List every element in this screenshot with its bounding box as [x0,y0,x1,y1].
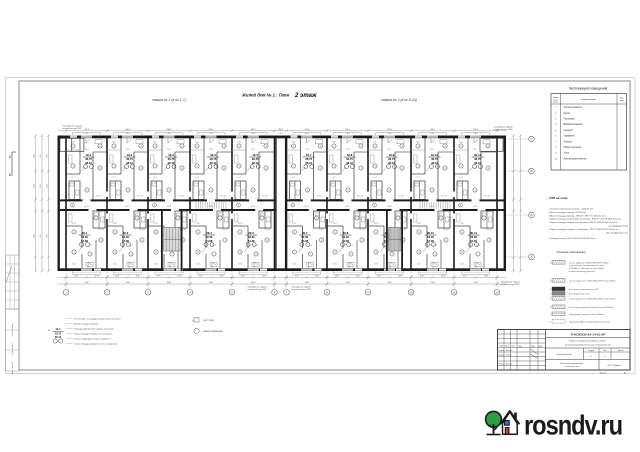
svg-text:10,6 м2: 10,6 м2 [443,229,449,231]
svg-text:Холл: Холл [563,152,570,155]
svg-text:2070: 2070 [377,275,381,277]
svg-text:2070: 2070 [333,223,337,225]
svg-text:Дата: Дата [539,346,542,348]
svg-text:2070: 2070 [113,223,117,225]
svg-text:3240: 3240 [332,142,336,144]
svg-text:5: 5 [550,299,551,301]
svg-text:16,2: 16,2 [459,177,462,179]
svg-text:Лоджия: Лоджия [563,140,573,143]
svg-text:3240: 3240 [195,142,199,144]
svg-text:52,30: 52,30 [342,235,349,239]
svg-text:36,75: 36,75 [388,157,395,161]
svg-text:2070: 2070 [420,275,424,277]
svg-text:h=2,7: h=2,7 [345,206,350,208]
svg-text:10: 10 [410,290,413,294]
svg-text:1К-1: 1К-1 [86,153,92,157]
svg-text:52,30: 52,30 [248,235,255,239]
svg-text:15,8: 15,8 [129,245,132,247]
svg-text:2070: 2070 [209,149,213,151]
svg-text:3240: 3240 [292,142,296,144]
svg-text:2070: 2070 [157,275,161,277]
svg-text:38,12: 38,12 [210,161,217,165]
svg-text:36,75: 36,75 [431,157,438,161]
svg-text:16,2: 16,2 [195,177,198,179]
svg-text:2: 2 [550,281,551,283]
svg-text:2070: 2070 [238,223,242,225]
svg-text:2070: 2070 [251,149,255,151]
svg-text:38,12: 38,12 [126,161,133,165]
svg-text:2К-1: 2К-1 [82,231,88,235]
svg-text:Прихожая: Прихожая [564,118,576,121]
svg-text:Строительный объем квартир -: Строительный объем квартир - 1326,45 м3 [549,208,593,211]
svg-text:2070: 2070 [136,275,140,277]
svg-text:2070: 2070 [374,223,378,225]
svg-text:2070: 2070 [315,275,319,277]
svg-text:h=2,7: h=2,7 [387,206,392,208]
svg-text:Н.контр.: Н.контр. [499,364,506,366]
svg-text:3500: 3500 [40,234,42,238]
svg-text:СК-2: СК-2 [388,133,392,135]
svg-text:2070: 2070 [430,149,434,151]
svg-text:12,4 м2: 12,4 м2 [220,196,226,198]
svg-text:8: 8 [293,205,294,207]
svg-text:Иванова: Иванова [506,350,512,352]
svg-text:1К-8: 1К-8 [347,153,353,157]
svg-text:устройство при СМР: устройство при СМР [493,128,513,131]
svg-text:2070: 2070 [356,275,360,277]
svg-text:12,4 м2: 12,4 м2 [178,196,184,198]
svg-text:3240: 3240 [153,142,157,144]
svg-text:Номер площадки квартиры: Номер площадки квартиры [74,324,99,326]
svg-text:2К-4: 2К-4 [206,231,212,235]
svg-text:4140: 4140 [251,282,255,284]
svg-text:Ванная комната: Ванная комната [564,123,584,126]
svg-text:Стадия: Стадия [588,350,594,352]
svg-text:38,12: 38,12 [55,336,62,339]
svg-text:Вентиляционный зазор: Вентиляционный зазор [569,292,589,295]
svg-text:3500: 3500 [40,154,42,158]
svg-text:12,4 м2: 12,4 м2 [441,196,447,198]
svg-text:Стены наружные из КББ («БЕССЕР: Стены наружные из КББ («БЕССЕР») 390мм [569,262,609,264]
svg-text:12,4 м2: 12,4 м2 [357,196,363,198]
svg-text:2К-7: 2К-7 [302,231,308,235]
svg-text:4140: 4140 [84,282,88,284]
svg-text:Жилая комната: Жилая комната [563,106,583,109]
svg-text:10,6 м2: 10,6 м2 [139,229,145,231]
svg-text:В: В [531,169,533,173]
svg-text:нетажного этажа: нетажного этажа [565,366,581,368]
svg-text:3240: 3240 [459,142,463,144]
svg-text:h=2,7: h=2,7 [430,206,435,208]
svg-text:38,12: 38,12 [168,161,175,165]
svg-text:6: 6 [550,307,551,309]
svg-text:П-НСМ.935-3А-14-01-АР: П-НСМ.935-3А-14-01-АР [571,333,605,337]
svg-text:8: 8 [550,322,551,324]
svg-text:Экспликация помещений: Экспликация помещений [569,87,608,91]
svg-text:12,4 м2: 12,4 м2 [484,196,490,198]
svg-text:38,12: 38,12 [85,161,92,165]
svg-text:3240: 3240 [196,264,200,266]
svg-text:3240: 3240 [416,142,420,144]
svg-text:Петров: Петров [506,355,511,357]
svg-text:Иванова: Иванова [506,364,512,366]
svg-text:4140: 4140 [209,282,213,284]
svg-text:2070: 2070 [463,275,467,277]
svg-text:Площадь этажа - 583,24 (469,: Площадь этажа - 583,24 (469,64 645,32) к… [549,238,596,240]
svg-text:городской округ Верхняя Пышма: городской округ Верхняя Пышма Свердловск… [565,344,612,347]
svg-text:15,8: 15,8 [254,245,257,247]
svg-text:3: 3 [550,289,551,291]
svg-text:8: 8 [154,205,155,207]
svg-text:3240: 3240 [237,142,241,144]
svg-text:Формат: Формат [599,371,606,374]
svg-text:номер помещения: номер помещения [203,331,223,333]
svg-text:1К-4: 1К-4 [210,153,216,157]
svg-text:8: 8 [238,205,239,207]
svg-text:36,75: 36,75 [168,157,175,161]
svg-text:Взам. инв. №: Взам. инв. № [11,361,14,374]
svg-text:8: 8 [72,205,73,207]
svg-text:12,4 м2: 12,4 м2 [262,196,268,198]
svg-text:2070: 2070 [484,275,488,277]
svg-text:12,4 м2: 12,4 м2 [398,196,404,198]
svg-text:3500: 3500 [47,184,49,188]
svg-text:4140: 4140 [305,282,309,284]
svg-text:38,12: 38,12 [474,161,481,165]
svg-text:16,2: 16,2 [153,177,156,179]
svg-text:15,8: 15,8 [309,245,312,247]
svg-text:(без коэффициентов): (без коэффициентов) [606,231,628,234]
svg-text:Жилая застройка по ул.Мира и п: Жилая застройка по ул.Мира и п.Мехн, [568,340,607,343]
svg-text:3240: 3240 [460,264,464,266]
svg-text:3240: 3240 [417,264,421,266]
svg-text:h=2,7: h=2,7 [125,206,130,208]
svg-text:1К-5: 1К-5 [252,153,258,157]
svg-text:38,12: 38,12 [388,161,395,165]
svg-text:16,2: 16,2 [237,177,240,179]
svg-text:2070: 2070 [346,149,350,151]
svg-text:3240: 3240 [113,264,117,266]
svg-text:(с коэффициентом): (с коэффициентом) [608,225,628,228]
svg-text:Жилая площадь квартир - 2115: Жилая площадь квартир - 2115,6 м2 [549,212,587,214]
svg-text:38,12: 38,12 [305,161,312,165]
svg-text:52,30: 52,30 [470,235,477,239]
svg-text:52,30: 52,30 [206,235,213,239]
svg-text:СК-2: СК-2 [305,133,309,135]
svg-text:А: А [531,255,533,259]
svg-text:2070: 2070 [167,149,171,151]
svg-text:2К-2: 2К-2 [123,231,129,235]
svg-text:15,8: 15,8 [476,245,479,247]
svg-text:1К-3: 1К-3 [168,153,174,157]
svg-text:Наименование: Наименование [581,99,597,101]
svg-text:52,30: 52,30 [427,235,434,239]
svg-text:2070: 2070 [72,223,76,225]
svg-text:Общая площадь квартир с балкон: Общая площадь квартир с балконами - 395,… [549,229,618,231]
svg-text:Б: Б [531,213,533,217]
svg-text:3500: 3500 [47,154,49,158]
svg-text:11: 11 [453,290,456,294]
svg-text:устройство при СМР: устройство при СМР [62,127,82,130]
svg-text:10,6 м2: 10,6 м2 [222,229,228,231]
svg-text:устройство при СМР: устройство при СМР [500,283,520,286]
svg-text:3240: 3240 [333,264,337,266]
svg-text:2070: 2070 [295,275,299,277]
svg-text:Площадь квартиры (без лоджий,: Площадь квартиры (без лоджий, балконов) [74,328,113,331]
svg-text:2070: 2070 [126,149,130,151]
svg-text:1К-9: 1К-9 [389,153,395,157]
svg-text:Проемы до ПВД со звукоизоляци: Проемы до ПВД со звукоизоляционным слоем [569,321,611,323]
svg-text:2070: 2070 [74,275,78,277]
svg-text:2070: 2070 [335,275,339,277]
svg-text:1К-10: 1К-10 [431,153,439,157]
svg-text:10,6 м2: 10,6 м2 [486,229,492,231]
svg-text:3500: 3500 [34,184,36,188]
svg-text:СК-2: СК-2 [474,133,478,135]
svg-text:2070: 2070 [85,149,89,151]
svg-text:Стены существующие железобетон: Стены существующие железобетонные (h=250… [569,307,614,309]
svg-text:54,08: 54,08 [81,239,88,243]
svg-text:Разраб.: Разраб. [499,350,506,352]
svg-text:2: 2 [8,155,11,159]
svg-text:и навесной фасад «Краспан»: и навесной фасад «Краспан» [569,270,595,273]
svg-text:3240: 3240 [112,142,116,144]
svg-text:чист. пола: чист. пола [203,320,215,322]
svg-text:Вентканалы - приставные из ПГП: Вентканалы - приставные из ПГП [569,289,599,291]
svg-text:Кухня: Кухня [564,112,571,115]
svg-text:36,75: 36,75 [210,157,217,161]
svg-text:Лестничная клетка: Лестничная клетка [563,157,587,160]
svg-text:3500: 3500 [34,154,36,158]
svg-text:СК-2: СК-2 [346,133,350,135]
svg-text:Стены внутренние из КББ («БЕСС: Стены внутренние из КББ («БЕССЕР») толщ.… [569,298,616,300]
svg-text:4: 4 [550,294,551,296]
svg-text:16,2: 16,2 [292,177,295,179]
svg-text:2070: 2070 [115,275,119,277]
svg-text:1К-2: 1К-2 [127,153,133,157]
svg-text:15,8: 15,8 [349,245,352,247]
svg-text:15,8: 15,8 [88,245,91,247]
svg-text:3500: 3500 [47,234,49,238]
svg-text:СК-2: СК-2 [167,133,171,135]
svg-text:2070: 2070 [293,223,297,225]
svg-text:4140: 4140 [473,282,477,284]
svg-text:36,75: 36,75 [85,157,92,161]
svg-text:2070: 2070 [220,275,224,277]
svg-text:Общая площадь квартиры (с балк: Общая площадь квартиры (с балконами и [74,334,112,336]
svg-text:12,4 м2: 12,4 м2 [96,196,102,198]
svg-text:Подп.: Подп. [531,346,536,348]
svg-text:36,75: 36,75 [474,157,481,161]
svg-text:СК-2: СК-2 [85,133,89,135]
svg-text:Изм: Изм [500,346,503,348]
svg-text:h=2,7: h=2,7 [251,206,256,208]
svg-text:1К-тип кварт., 2-ая цифра озна: 1К-тип кварт., 2-ая цифра означает колич… [74,318,121,321]
svg-text:54,08: 54,08 [122,239,129,243]
svg-text:щения: щения [553,102,558,104]
svg-text:10,6 м2: 10,6 м2 [264,229,270,231]
svg-text:2: 2 [8,173,11,177]
svg-text:1К-7: 1К-7 [306,153,312,157]
svg-text:2070: 2070 [441,275,445,277]
svg-text:3500: 3500 [34,234,36,238]
svg-text:4140: 4140 [125,282,129,284]
svg-text:1: 1 [555,107,556,109]
svg-text:16,2: 16,2 [373,177,376,179]
svg-text:ООО «Проект»: ООО «Проект» [607,365,622,367]
svg-text:16,2: 16,2 [71,177,74,179]
svg-text:12: 12 [496,290,499,294]
svg-text:СК-2: СК-2 [279,133,283,135]
svg-text:36,75: 36,75 [346,157,353,161]
svg-text:10,6 м2: 10,6 м2 [359,229,365,231]
svg-text:36,75: 36,75 [252,157,259,161]
svg-text:Лист: Лист [603,350,607,352]
svg-text:2070: 2070 [241,275,245,277]
svg-text:Кол.уч: Кол.уч [505,346,510,348]
svg-text:Общий коридор: Общий коридор [564,146,582,149]
svg-text:54,08: 54,08 [248,239,255,243]
svg-text:4140: 4140 [430,282,434,284]
svg-text:12,4 м2: 12,4 м2 [317,196,323,198]
svg-text:h=2,7: h=2,7 [305,206,310,208]
svg-text:rosndv.ru: rosndv.ru [524,410,622,441]
svg-text:10,6 м2: 10,6 м2 [98,229,104,231]
svg-text:54,08: 54,08 [470,239,477,243]
svg-text:h=2,7: h=2,7 [84,206,89,208]
svg-text:ТЭП на этаж:: ТЭП на этаж: [549,196,568,200]
svg-text:8: 8 [460,205,461,207]
svg-text:устройство при СМР: устройство при СМР [247,288,267,291]
svg-text:устройство при СМР: устройство при СМР [291,288,311,291]
svg-text:1: 1 [550,263,551,265]
svg-text:3240: 3240 [72,264,76,266]
svg-text:3500: 3500 [40,184,42,188]
svg-text:54,08: 54,08 [206,239,213,243]
svg-text:2070: 2070 [387,149,391,151]
svg-text:1К-1: 1К-1 [55,328,61,331]
svg-text:36,75: 36,75 [305,157,312,161]
svg-text:СК-2: СК-2 [126,133,130,135]
svg-text:2070: 2070 [95,275,99,277]
svg-text:4140: 4140 [167,282,171,284]
svg-text:54,08: 54,08 [427,239,434,243]
svg-text:16,2: 16,2 [416,177,419,179]
svg-text:38,12: 38,12 [252,161,259,165]
svg-text:38,12: 38,12 [346,161,353,165]
svg-text:12,4 м2: 12,4 м2 [137,196,143,198]
svg-text:15,8: 15,8 [433,245,436,247]
svg-text:Провер.: Провер. [499,355,506,357]
svg-text:8: 8 [374,205,375,207]
svg-text:СК-2: СК-2 [251,133,255,135]
svg-text:h=2,7: h=2,7 [167,206,172,208]
svg-text:Общая площадь квартиры (с балк: Общая площадь квартиры (с балк. и лоджия… [74,344,118,346]
svg-text:Подп. и дата: Подп. и дата [12,342,14,355]
svg-text:4140: 4140 [345,282,349,284]
svg-text:2070: 2070 [178,275,182,277]
svg-text:Санузел: Санузел [564,129,574,132]
svg-text:Инв. № подл.: Инв. № подл. [11,322,14,335]
svg-text:52,30: 52,30 [81,235,88,239]
svg-text:Условные обозначения: Условные обозначения [556,250,586,254]
svg-text:СК-2: СК-2 [431,133,435,135]
svg-text:с утеплителем - минераловатная: с утеплителем - минераловатная плита [569,265,605,267]
svg-text:10,6 м2: 10,6 м2 [319,229,325,231]
svg-text:2070: 2070 [306,149,310,151]
svg-text:2070: 2070 [473,149,477,151]
svg-text:4140: 4140 [387,282,391,284]
svg-text:2К-10: 2К-10 [427,231,435,235]
svg-text:3240: 3240 [154,264,158,266]
svg-text:10,6 м2: 10,6 м2 [400,229,406,231]
svg-text:2К-8: 2К-8 [343,231,349,235]
svg-text:16,2: 16,2 [112,177,115,179]
svg-text:1К-11: 1К-11 [474,153,481,157]
svg-text:2070: 2070 [196,223,200,225]
svg-text:пониж. коэффициентом: для лодж: пониж. коэффициентом: для лоджий 0,5 [74,338,110,341]
svg-text:Общая площадь квартир (без бал: Общая площадь квартир (без балконов) - 3… [549,219,622,221]
svg-text:СК-2: СК-2 [209,133,213,135]
svg-text:2070: 2070 [262,275,266,277]
svg-text:2070: 2070 [199,275,203,277]
svg-text:54,08: 54,08 [301,239,308,243]
svg-text:54,08: 54,08 [342,239,349,243]
svg-text:Жилой дом №1: Жилой дом №1 [557,353,573,356]
svg-text:Перегородки - пазогребневые (t: Перегородки - пазогребневые (t=80мм) [569,313,604,316]
svg-text:щадь: щадь [620,100,624,102]
svg-text:2 этаж: 2 этаж [294,93,317,99]
svg-text:36,75: 36,75 [126,157,133,161]
svg-text:2070: 2070 [154,223,158,225]
svg-text:Гардероб: Гардероб [564,135,575,138]
svg-text:3240: 3240 [374,264,378,266]
svg-text:h=2,7: h=2,7 [473,206,478,208]
svg-text:2К-5: 2К-5 [248,231,254,235]
svg-text:Листов: Листов [618,350,624,352]
svg-text:52,30: 52,30 [122,235,129,239]
svg-text:Жилой дом № 1 : План: Жилой дом № 1 : План [241,93,290,98]
svg-text:План существующих дойб-: План существующих дойб- [560,362,584,365]
svg-text:h=2,7: h=2,7 [209,206,214,208]
svg-text:3240: 3240 [373,142,377,144]
svg-text:3240: 3240 [238,264,242,266]
svg-text:ROCKWOOL «Венти Баттс» (по 100: ROCKWOOL «Венти Баттс» (по 100мм), [569,268,605,270]
svg-text:7: 7 [550,314,551,316]
svg-text:2070: 2070 [417,223,421,225]
svg-text:Лист: Лист [512,346,516,348]
svg-text:16,2: 16,2 [332,177,335,179]
svg-text:Стены внутренние из КББ («БЕСС: Стены внутренние из КББ («БЕССЕР») толщ.… [569,280,616,282]
svg-text:Общая площадь квартир с балкон: Общая площадь квартир с балконами - 391,… [549,222,618,224]
svg-text:2070: 2070 [398,275,402,277]
svg-text:3240: 3240 [293,264,297,266]
svg-text:2К-11: 2К-11 [470,231,477,235]
svg-text:секция № 2 (в ос 8-14): секция № 2 (в ос 8-14) [381,98,416,102]
svg-text:2070: 2070 [460,223,464,225]
svg-text:секция № 1 (в ос 1-7): секция № 1 (в ос 1-7) [152,98,186,102]
svg-text:15,8: 15,8 [212,245,215,247]
svg-text:Жилая площадь квартир - 386,: Жилая площадь квартир - 386,57 / 386,7*1… [549,215,607,217]
svg-text:38,12: 38,12 [431,161,438,165]
svg-text:52,30: 52,30 [301,235,308,239]
